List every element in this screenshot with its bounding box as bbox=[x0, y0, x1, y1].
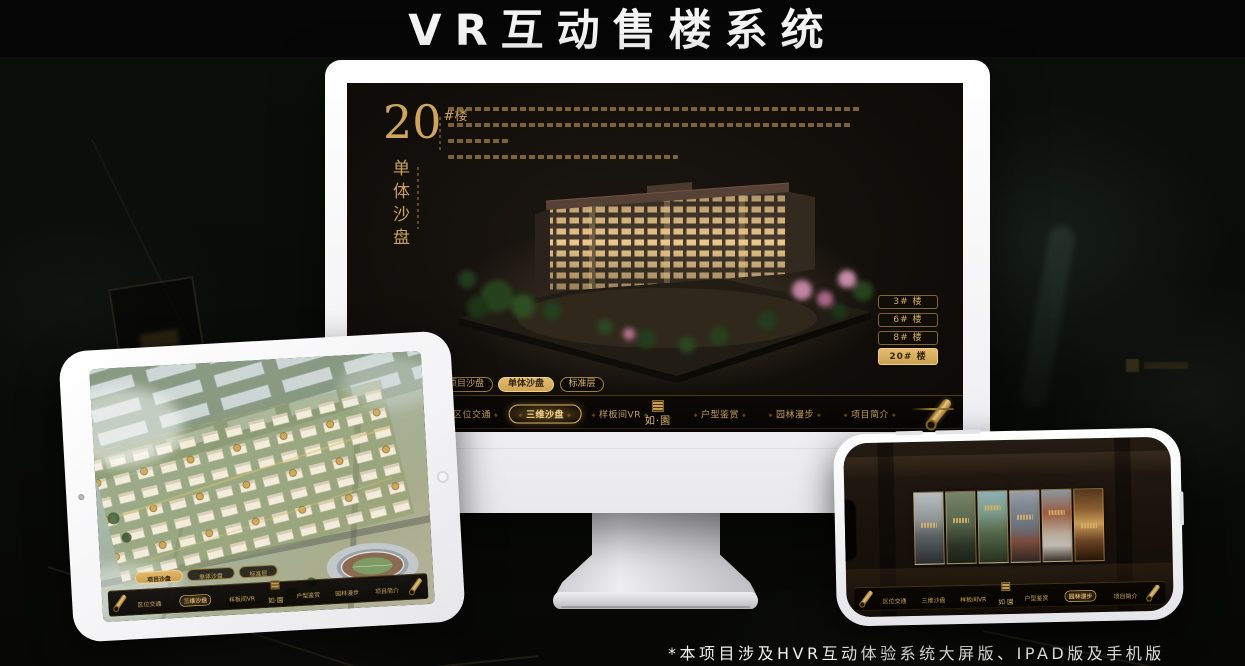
nav-item-3d-sandtable[interactable]: 三维沙盘 bbox=[915, 588, 951, 608]
nav-item-showroom-vr[interactable]: 样板间VR bbox=[589, 408, 652, 421]
phone-device: 区位交通 三维沙盘 样板间VR 如·園 户型鉴赏 园林漫步 项目简介 bbox=[833, 427, 1184, 626]
gallery-card-courtyard[interactable] bbox=[913, 491, 945, 565]
nav-item-unit-appreciation[interactable]: 户型鉴赏 bbox=[691, 408, 750, 421]
tablet-device: 项目沙盘 单体沙盘 标准层 区位交通 三维沙盘 样板间VR 如·園 户型鉴赏 园… bbox=[58, 330, 466, 642]
monitor-stand-base bbox=[553, 592, 758, 609]
nav-item-garden-walk[interactable]: 园林漫步 bbox=[328, 580, 365, 601]
nav-item-unit-appreciation[interactable]: 户型鉴赏 bbox=[1018, 586, 1054, 606]
card-caption bbox=[1080, 523, 1096, 528]
vertical-caption-placeholder bbox=[417, 167, 419, 229]
card-caption bbox=[1048, 510, 1064, 515]
scene-gallery bbox=[913, 488, 1104, 565]
scroll-ornament-icon[interactable] bbox=[404, 575, 427, 599]
volume-button bbox=[895, 431, 923, 436]
volume-button bbox=[935, 430, 981, 435]
scroll-ornament-icon[interactable] bbox=[1142, 581, 1166, 605]
nav-item-unit-appreciation[interactable]: 户型鉴赏 bbox=[289, 582, 326, 603]
card-caption bbox=[984, 505, 1000, 510]
page-title: VR互动售楼系统 bbox=[0, 0, 1245, 58]
floor-button-8[interactable]: 8# 楼 bbox=[878, 331, 938, 345]
nav-item-garden-walk[interactable]: 园林漫步 bbox=[766, 408, 825, 421]
gallery-card-garden[interactable] bbox=[945, 491, 977, 565]
description-text-line bbox=[448, 107, 862, 111]
gallery-card-interior[interactable] bbox=[1073, 488, 1105, 562]
power-button bbox=[1179, 491, 1184, 525]
brand-logo-text: 如·園 bbox=[998, 597, 1013, 607]
nav-item-showroom-vr[interactable]: 样板间VR bbox=[953, 587, 993, 607]
tab-standard-floor[interactable]: 标准层 bbox=[238, 564, 278, 578]
floor-subtitle-vertical: 单体沙盘 bbox=[387, 159, 412, 251]
scroll-ornament-icon[interactable] bbox=[915, 390, 963, 432]
nav-item-project-intro[interactable]: 项目简介 bbox=[1107, 584, 1143, 604]
description-text-line bbox=[448, 123, 852, 127]
nav-item-location-traffic[interactable]: 区位交通 bbox=[131, 591, 168, 612]
floor-button-20-active[interactable]: 20# 楼 bbox=[878, 348, 938, 365]
bg-river bbox=[1019, 224, 1077, 410]
nav-item-3d-sandtable[interactable]: 三维沙盘 bbox=[509, 405, 582, 424]
nav-item-project-intro[interactable]: 项目简介 bbox=[841, 408, 900, 421]
bg-developer-logo bbox=[1126, 357, 1196, 375]
phone-screen: 区位交通 三维沙盘 样板间VR 如·園 户型鉴赏 园林漫步 项目简介 bbox=[843, 437, 1174, 618]
phone-notch bbox=[844, 499, 857, 561]
floor-number: 20 bbox=[383, 95, 442, 149]
tablet-screen: 项目沙盘 单体沙盘 标准层 区位交通 三维沙盘 样板间VR 如·園 户型鉴赏 园… bbox=[89, 351, 435, 622]
brand-logo[interactable]: 如·園 bbox=[265, 581, 287, 608]
card-caption bbox=[1016, 515, 1032, 520]
card-caption bbox=[952, 518, 968, 523]
gallery-card-autumn-path[interactable] bbox=[1041, 489, 1073, 563]
nav-item-location-traffic[interactable]: 区位交通 bbox=[877, 589, 913, 609]
floor-button-6[interactable]: 6# 楼 bbox=[878, 313, 938, 327]
scroll-ornament-icon[interactable] bbox=[109, 591, 132, 615]
nav-item-showroom-vr[interactable]: 样板间VR bbox=[222, 586, 262, 607]
scroll-ornament-icon[interactable] bbox=[855, 587, 879, 611]
nav-item-garden-walk[interactable]: 园林漫步 bbox=[1057, 584, 1105, 605]
brand-logo[interactable]: 如·園 bbox=[995, 583, 1016, 609]
description-text-line bbox=[448, 139, 508, 143]
footnote: *本项目涉及HVR互动体验系统大屏版、IPAD版及手机版 bbox=[668, 640, 1165, 664]
home-button[interactable] bbox=[436, 470, 449, 483]
stage: VR互动售楼系统 bbox=[0, 0, 1245, 666]
brand-logo[interactable]: 如·園 bbox=[645, 401, 671, 427]
camera-icon bbox=[78, 493, 84, 499]
brand-logo-text: 如·園 bbox=[645, 412, 671, 427]
tab-standard-floor[interactable]: 标准层 bbox=[560, 377, 604, 392]
tab-single-sandtable-active[interactable]: 单体沙盘 bbox=[498, 377, 554, 392]
gallery-card-building[interactable] bbox=[1009, 489, 1041, 563]
card-caption bbox=[920, 523, 936, 528]
gallery-card-landscape[interactable] bbox=[977, 490, 1009, 564]
description-text-line bbox=[448, 155, 678, 159]
brand-logo-text: 如·園 bbox=[268, 595, 284, 605]
scroll-ribbon bbox=[912, 408, 954, 410]
seal-icon bbox=[272, 581, 279, 588]
floor-unit: #楼 bbox=[444, 109, 468, 124]
nav-item-3d-sandtable[interactable]: 三维沙盘 bbox=[171, 588, 220, 611]
floor-button-3[interactable]: 3# 楼 bbox=[878, 295, 938, 309]
vertical-caption-placeholder bbox=[439, 117, 441, 151]
nav-item-project-intro[interactable]: 项目简介 bbox=[368, 578, 405, 599]
seal-icon bbox=[1002, 583, 1009, 590]
seal-icon bbox=[653, 401, 663, 411]
